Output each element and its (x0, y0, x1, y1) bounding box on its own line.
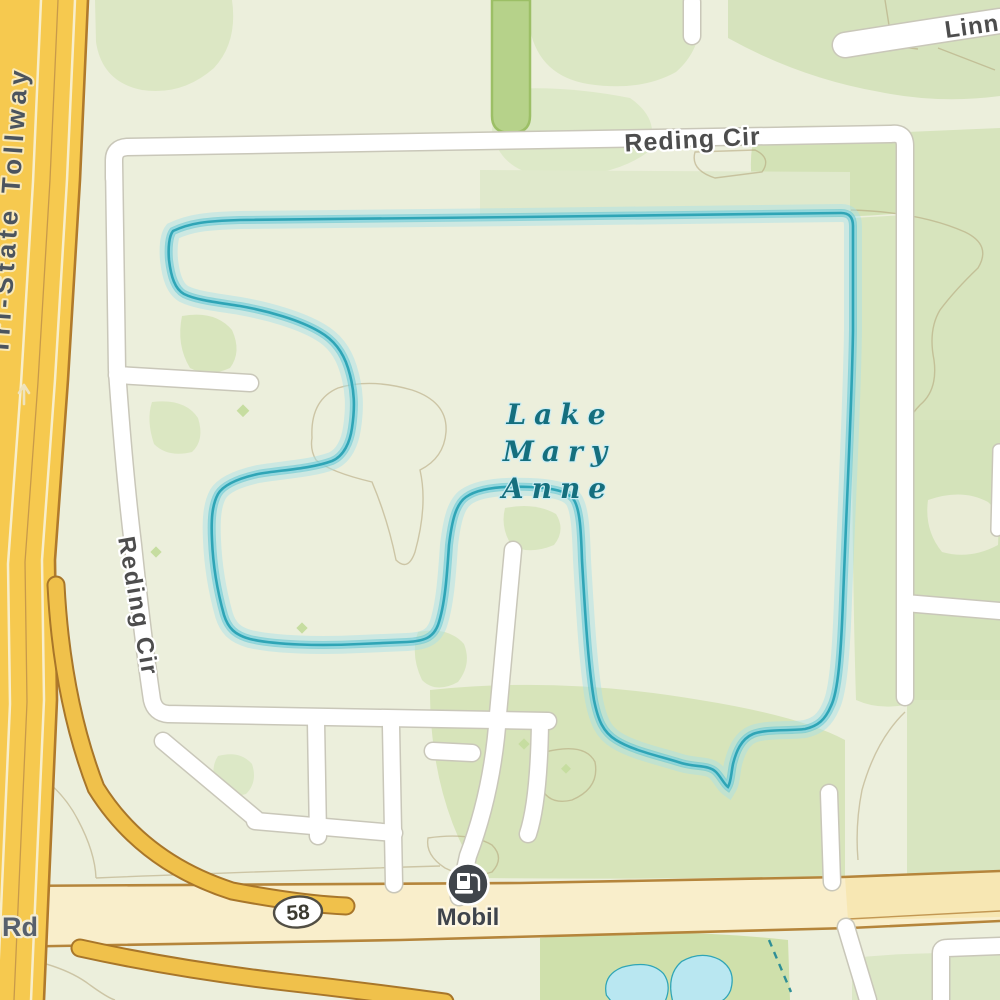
east-branch-road (905, 603, 1000, 611)
svg-text:Anne: Anne (499, 472, 614, 505)
map-canvas[interactable]: Reding Cir Reding Cir Linneman Tri-State… (0, 0, 1000, 1000)
fuel-pump-icon[interactable] (448, 864, 489, 905)
cul-de-sac-stub-road (117, 375, 250, 383)
route-58-number: 58 (286, 901, 311, 926)
map-tile[interactable]: Reding Cir Reding Cir Linneman Tri-State… (0, 0, 1000, 1000)
lake-name-label: Lake Mary Anne (499, 398, 615, 505)
svg-text:Mary: Mary (502, 435, 615, 468)
svg-text:Lake: Lake (505, 398, 613, 431)
park-path-strip (492, 0, 530, 133)
rd-label: Rd (2, 912, 38, 942)
gas-station-label: Mobil (437, 904, 500, 931)
